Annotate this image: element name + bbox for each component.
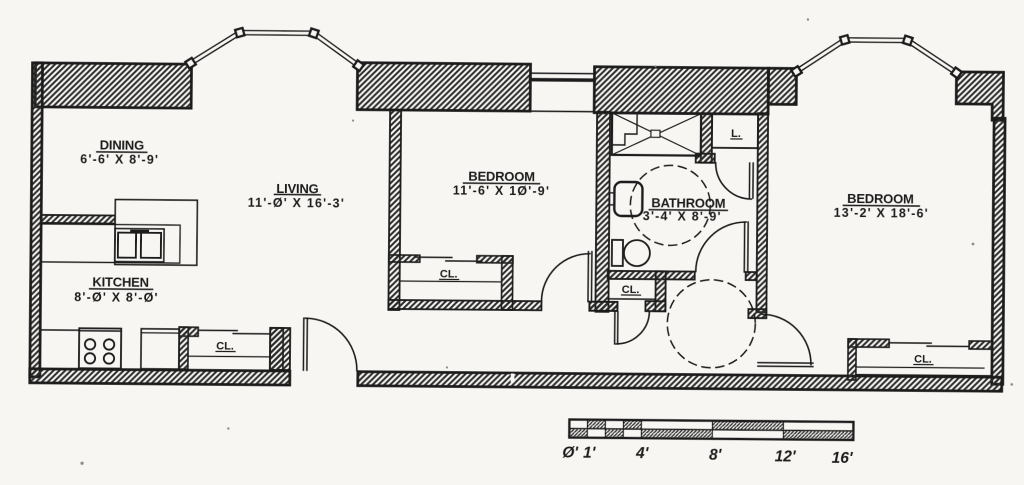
svg-text:DINING: DINING — [100, 137, 145, 152]
svg-text:16': 16' — [832, 450, 854, 467]
svg-text:11'-Ø' X 16'-3': 11'-Ø' X 16'-3' — [248, 196, 345, 211]
svg-text:BEDROOM: BEDROOM — [847, 191, 914, 207]
svg-text:8'-Ø' X 8'-Ø': 8'-Ø' X 8'-Ø' — [74, 290, 159, 305]
svg-text:CL.: CL. — [914, 354, 932, 366]
svg-text:4': 4' — [635, 445, 650, 462]
svg-text:CL.: CL. — [216, 340, 234, 352]
svg-text:Ø': Ø' — [562, 444, 579, 461]
svg-text:8': 8' — [709, 447, 723, 464]
svg-text:CL.: CL. — [440, 268, 458, 280]
svg-text:6'-6' X 8'-9': 6'-6' X 8'-9' — [80, 152, 159, 167]
svg-text:11'-6' X 1Ø'-9': 11'-6' X 1Ø'-9' — [453, 183, 550, 198]
svg-text:12': 12' — [775, 448, 797, 465]
svg-text:CL.: CL. — [622, 284, 640, 296]
svg-text:1': 1' — [583, 445, 597, 462]
svg-text:BEDROOM: BEDROOM — [468, 169, 535, 185]
svg-text:3'-4' X 8'-9': 3'-4' X 8'-9' — [643, 209, 722, 224]
svg-text:KITCHEN: KITCHEN — [92, 274, 149, 289]
svg-text:L.: L. — [731, 128, 741, 140]
svg-text:13'-2' X 18'-6': 13'-2' X 18'-6' — [834, 206, 929, 221]
